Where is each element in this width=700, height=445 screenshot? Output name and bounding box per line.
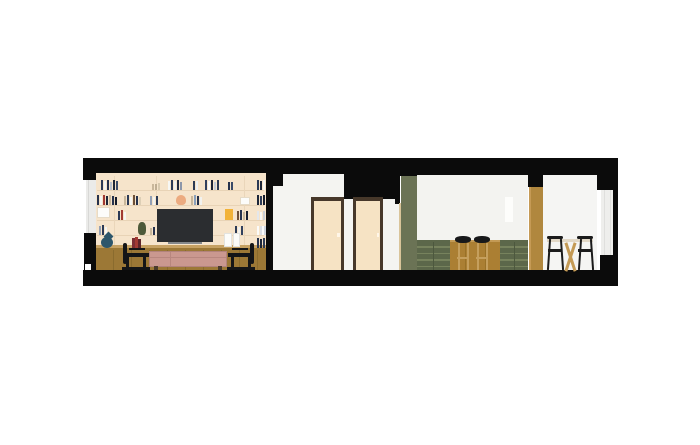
right-window-frame-line <box>604 190 605 255</box>
book <box>171 180 173 190</box>
bench-seam <box>113 250 114 270</box>
book <box>241 226 243 235</box>
door-frame-jamb <box>341 197 344 270</box>
book <box>260 181 262 190</box>
hall-wall-left <box>273 186 283 270</box>
yellow-box <box>225 209 233 220</box>
book <box>263 180 265 190</box>
cut-wall-divider-living-hall <box>266 158 273 270</box>
stool-seat <box>455 236 471 243</box>
book <box>237 211 239 220</box>
floor-notch-left <box>85 264 91 270</box>
book <box>107 180 109 190</box>
book <box>174 181 176 190</box>
magazine-file <box>233 233 241 247</box>
dining-chair-seat <box>578 249 592 252</box>
book <box>257 211 259 220</box>
book <box>257 195 259 205</box>
book <box>124 196 126 205</box>
book <box>177 180 179 190</box>
shelf-line <box>97 205 264 206</box>
book <box>138 239 141 248</box>
wood-panel <box>529 187 543 270</box>
book <box>260 212 262 220</box>
storage-box <box>240 197 250 205</box>
tv-soundbar <box>168 242 202 244</box>
book <box>228 182 230 190</box>
right-window-frame-line <box>610 190 611 255</box>
book <box>136 196 138 205</box>
book <box>168 181 170 190</box>
book <box>118 211 120 220</box>
kitchen-olive-wall <box>401 176 417 270</box>
kitchen-wall-light-panel <box>505 197 513 222</box>
dining-table-top <box>547 239 593 242</box>
wood-panel-edge <box>529 187 531 270</box>
book <box>133 195 135 205</box>
book <box>124 212 126 220</box>
book <box>115 197 117 205</box>
book <box>112 196 114 205</box>
shelf-line <box>97 190 264 191</box>
book <box>260 239 262 248</box>
book <box>113 180 115 190</box>
book <box>208 181 210 190</box>
book <box>106 196 108 205</box>
book <box>231 182 233 190</box>
orange-vase <box>176 195 186 205</box>
dining-chair-seat <box>548 249 562 252</box>
book <box>264 226 266 235</box>
book <box>104 181 106 190</box>
book <box>150 228 152 235</box>
book <box>214 182 216 190</box>
cut-wall-top-dining <box>545 158 597 175</box>
book <box>156 196 158 205</box>
book <box>155 184 157 190</box>
lounge-chair-arm <box>129 248 145 250</box>
stool-crossbar <box>476 257 488 259</box>
book <box>153 227 155 235</box>
book <box>200 197 202 205</box>
book <box>110 182 112 190</box>
book <box>139 197 141 205</box>
sofa-foot <box>154 266 158 270</box>
book <box>246 211 248 220</box>
door-frame-jamb <box>380 197 383 270</box>
storage-box <box>97 207 110 218</box>
book <box>130 197 132 205</box>
book <box>263 195 265 205</box>
cabinet-divider <box>514 242 515 270</box>
book <box>109 195 111 205</box>
sofa <box>149 251 227 267</box>
book <box>191 196 193 205</box>
sofa-seam <box>150 257 226 258</box>
bench-seam <box>257 250 258 270</box>
book <box>197 196 199 205</box>
book <box>257 180 259 190</box>
book <box>260 196 262 205</box>
book <box>180 182 182 190</box>
book <box>116 181 118 190</box>
magazine-file <box>224 233 232 247</box>
apartment-section-drawing <box>0 0 700 445</box>
book <box>150 196 152 205</box>
book <box>152 184 154 190</box>
book <box>101 180 103 190</box>
book <box>243 212 245 220</box>
cut-wall-top-kitchen <box>417 158 528 175</box>
cut-wall-top-hall-mid <box>283 158 344 174</box>
book <box>217 180 219 190</box>
book <box>193 181 195 190</box>
stool-crossbar <box>457 257 469 259</box>
door-handle <box>337 233 340 237</box>
book <box>158 183 160 190</box>
cut-wall-right-window-sill <box>600 255 618 270</box>
cut-wall-top-olive <box>400 158 417 176</box>
stool-seat <box>474 236 490 243</box>
cabinet-divider <box>433 242 434 270</box>
book <box>103 195 105 205</box>
book <box>196 181 198 190</box>
floor-slab <box>83 270 618 286</box>
book <box>99 226 101 235</box>
green-vase <box>138 222 146 235</box>
book <box>153 197 155 205</box>
book <box>121 210 123 220</box>
lounge-chair-arm <box>232 248 248 250</box>
cut-wall-right-window-edge <box>613 190 618 255</box>
book <box>97 195 99 205</box>
tv-screen <box>157 209 213 242</box>
book <box>211 180 213 190</box>
sofa-seam-vertical <box>170 252 171 266</box>
book <box>102 225 104 235</box>
book <box>257 238 259 248</box>
book <box>205 180 207 190</box>
door-handle <box>377 233 380 237</box>
book <box>127 195 129 205</box>
book <box>194 195 196 205</box>
book <box>263 211 265 220</box>
book <box>240 210 242 220</box>
cut-wall-top-hall-right <box>344 158 400 199</box>
left-window-frame-line <box>88 180 89 233</box>
lounge-chair-base <box>227 267 255 270</box>
book <box>100 196 102 205</box>
book <box>263 238 265 248</box>
blue-drop-vase <box>101 237 113 248</box>
cut-wall-top-hall-left <box>273 158 283 186</box>
cut-wall-right-window-header <box>597 158 618 190</box>
lounge-chair-base <box>122 267 150 270</box>
cut-wall-top-living <box>83 158 268 173</box>
sofa-foot <box>218 266 222 270</box>
cut-wall-left-window-header <box>83 158 97 180</box>
